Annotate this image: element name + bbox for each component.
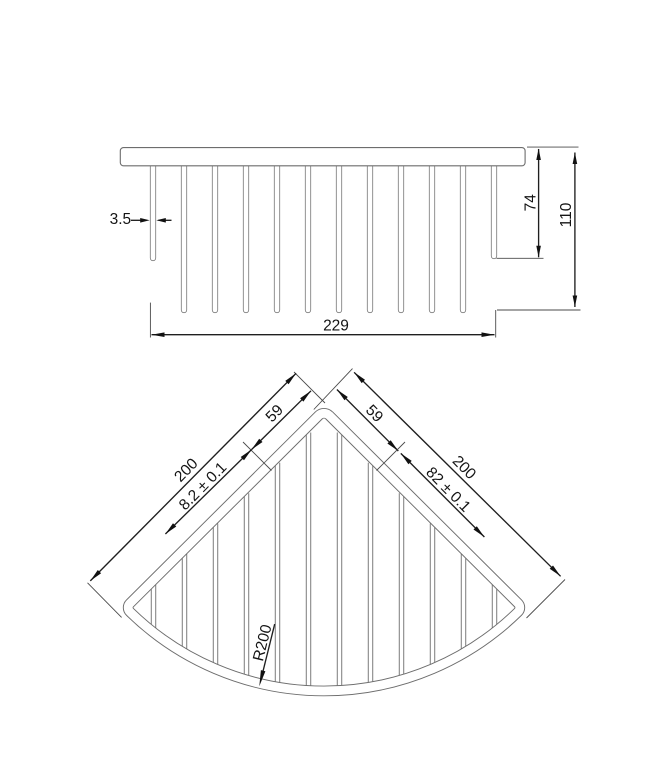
svg-text:74: 74 xyxy=(522,194,539,212)
svg-text:3.5: 3.5 xyxy=(110,211,132,228)
svg-text:110: 110 xyxy=(558,202,575,227)
svg-text:229: 229 xyxy=(323,318,349,335)
